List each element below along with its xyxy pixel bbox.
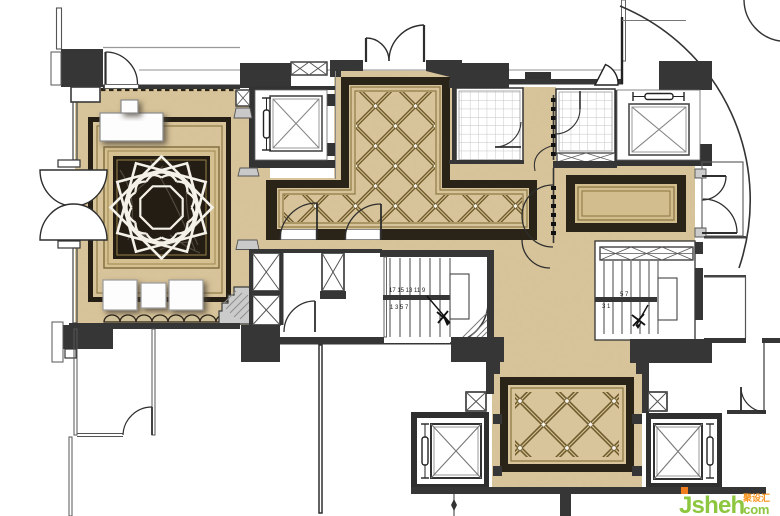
- svg-text:Jsheh: Jsheh: [679, 492, 745, 516]
- svg-text:聚设汇: 聚设汇: [742, 492, 770, 503]
- svg-text:3 1: 3 1: [602, 304, 611, 310]
- svg-text:17 15 13 11 9: 17 15 13 11 9: [389, 288, 426, 294]
- svg-text:1 3 5 7: 1 3 5 7: [390, 305, 409, 311]
- svg-text:5 7: 5 7: [620, 292, 629, 298]
- svg-text:.com: .com: [740, 502, 769, 516]
